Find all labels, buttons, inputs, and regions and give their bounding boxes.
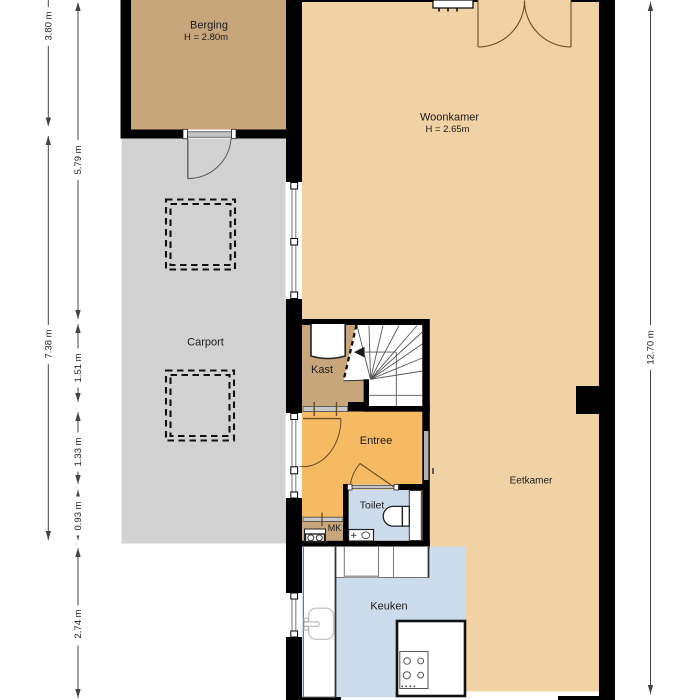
svg-text:7.38 m: 7.38 m — [44, 329, 55, 358]
svg-text:H = 2.65m: H = 2.65m — [425, 124, 469, 135]
svg-text:Toilet: Toilet — [360, 500, 385, 512]
svg-text:5.79 m: 5.79 m — [73, 145, 84, 174]
svg-text:1.33 m: 1.33 m — [73, 437, 84, 466]
svg-text:2.74 m: 2.74 m — [73, 609, 84, 638]
svg-text:3.80 m: 3.80 m — [44, 11, 55, 40]
svg-text:Carport: Carport — [187, 337, 224, 349]
svg-text:Kast: Kast — [311, 364, 333, 376]
svg-text:1.51 m: 1.51 m — [73, 353, 84, 382]
svg-text:Berging: Berging — [190, 20, 228, 32]
svg-text:12.70 m: 12.70 m — [646, 330, 657, 364]
svg-text:Eetkamer: Eetkamer — [510, 476, 553, 487]
svg-text:Keuken: Keuken — [370, 601, 407, 613]
svg-text:Entree: Entree — [360, 435, 392, 447]
svg-text:Woonkamer: Woonkamer — [420, 112, 479, 124]
svg-text:H = 2.80m: H = 2.80m — [184, 32, 228, 43]
svg-text:MK: MK — [328, 523, 342, 533]
svg-text:0.93 m: 0.93 m — [73, 501, 84, 530]
